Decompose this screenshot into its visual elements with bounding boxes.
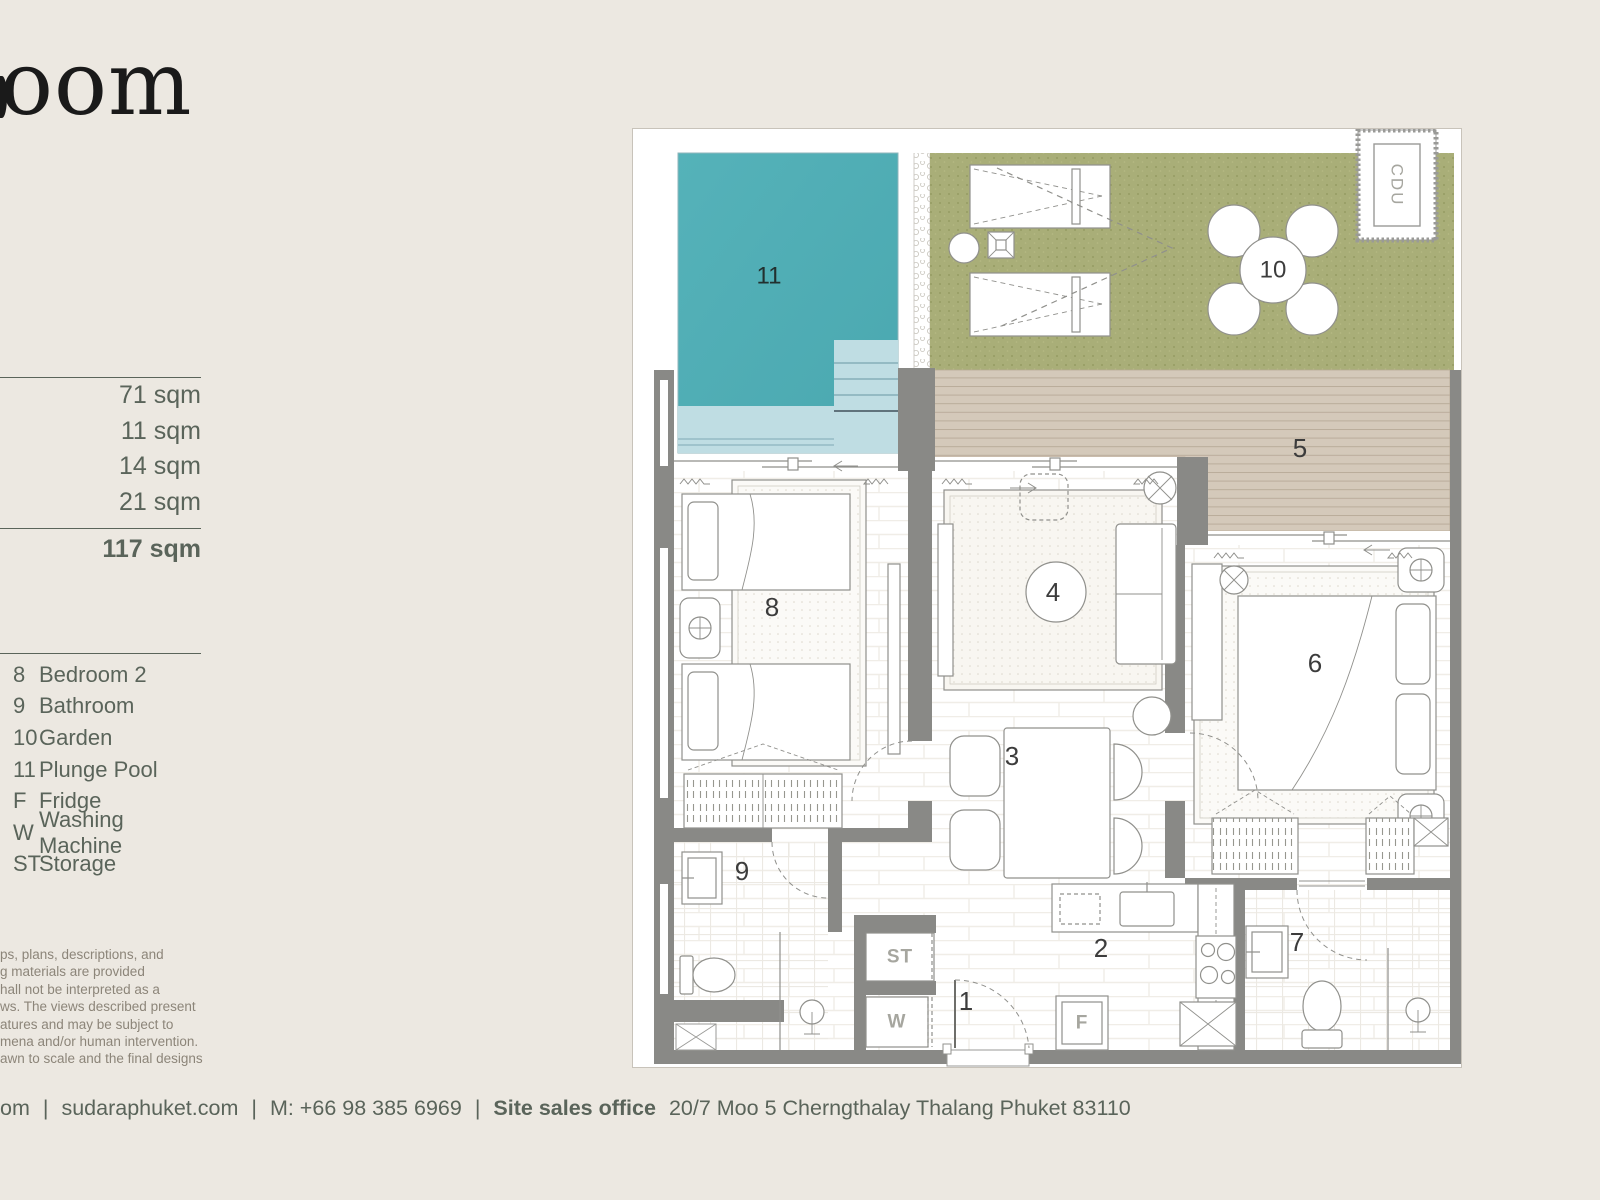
cooktop <box>1196 936 1236 998</box>
disclaimer-line: mena and/or human intervention. <box>0 1033 230 1050</box>
area-summary: 71 sqm 11 sqm 14 sqm 21 sqm 117 sqm <box>0 377 201 569</box>
legend-label: Bedroom 2 <box>39 662 201 688</box>
label-kitchen: 2 <box>1094 933 1108 963</box>
nightstand-lamp <box>680 598 720 658</box>
twin-bed <box>682 664 850 760</box>
footer-website: sudaraphuket.com <box>61 1096 238 1121</box>
legend-label: Garden <box>39 725 201 751</box>
plan-legend: 8Bedroom 2 9Bathroom 10Garden 11Plunge P… <box>0 653 201 880</box>
legend-item: 10Garden <box>0 722 201 754</box>
plant <box>1144 472 1176 504</box>
tv-console <box>938 524 953 676</box>
sun-lounger <box>970 165 1110 228</box>
pebble-strip <box>914 153 930 370</box>
label-bathroom1: 9 <box>735 856 749 886</box>
legend-label: Bathroom <box>39 693 201 719</box>
legend-item: 9Bathroom <box>0 691 201 723</box>
kitchen-island <box>1052 882 1198 932</box>
label-bedroom2: 8 <box>765 592 779 622</box>
label-bathroom2: 7 <box>1290 927 1304 957</box>
legend-key: W <box>13 820 39 846</box>
label-bedroom1: 6 <box>1308 648 1322 678</box>
chair <box>950 810 1000 870</box>
twin-bed <box>682 494 850 590</box>
legend-key: ST <box>13 851 39 877</box>
legend-key: 9 <box>13 693 39 719</box>
toilet <box>680 956 735 994</box>
legend-label: Plunge Pool <box>39 757 201 783</box>
area-value: 11 sqm <box>121 417 201 446</box>
disclaimer-text: ps, plans, descriptions, and g materials… <box>0 946 230 1068</box>
dining-table <box>1004 728 1110 878</box>
sink-vanity <box>1246 926 1288 978</box>
area-value: 21 sqm <box>119 488 201 517</box>
label-entrance: 1 <box>959 986 973 1016</box>
side-table <box>1133 697 1171 735</box>
nightstand-lamp <box>1398 548 1444 592</box>
label-living: 4 <box>1046 577 1060 607</box>
legend-key: 8 <box>13 662 39 688</box>
disclaimer-line: ws. The views described present <box>0 998 230 1015</box>
legend-key: F <box>13 788 39 814</box>
label-fridge: F <box>1076 1013 1089 1034</box>
desk <box>1192 564 1222 720</box>
legend-item: 11Plunge Pool <box>0 754 201 786</box>
area-total-value: 117 sqm <box>102 535 201 564</box>
label-cdu: CDU <box>1388 164 1407 207</box>
label-deck: 5 <box>1293 433 1307 463</box>
sliding-door-living <box>935 457 1177 471</box>
disclaimer-line: g materials are provided <box>0 963 230 980</box>
area-value: 14 sqm <box>119 452 201 481</box>
sink <box>1120 892 1174 926</box>
floor-plan: 11 10 5 8 4 3 6 9 2 7 1 ST W F CDU <box>632 128 1462 1068</box>
storage-panel <box>1414 818 1448 846</box>
sofa <box>1116 524 1176 664</box>
label-washing: W <box>888 1012 907 1033</box>
vent-box <box>1180 1002 1236 1046</box>
floor-plan-svg: 11 10 5 8 4 3 6 9 2 7 1 ST W F CDU <box>632 128 1462 1068</box>
footer-separator: | <box>43 1096 49 1121</box>
footer-contact-bar: om | sudaraphuket.com | M: +66 98 385 69… <box>0 1096 1131 1121</box>
footer-clipped-fragment: om <box>0 1096 30 1121</box>
label-plunge-pool: 11 <box>757 263 782 290</box>
legend-item: 8Bedroom 2 <box>0 659 201 691</box>
umbrella-base <box>988 232 1014 258</box>
chair <box>950 736 1000 796</box>
disclaimer-line: ps, plans, descriptions, and <box>0 946 230 963</box>
disclaimer-line: awn to scale and the final designs <box>0 1050 230 1067</box>
footer-office-label: Site sales office <box>493 1096 656 1121</box>
label-storage: ST <box>887 947 913 968</box>
sliding-door-bedroom2 <box>674 457 898 471</box>
divider <box>0 653 201 654</box>
label-dining: 3 <box>1005 741 1019 771</box>
footer-separator: | <box>475 1096 481 1121</box>
area-value: 71 sqm <box>119 381 201 410</box>
footer-mobile: M: +66 98 385 6969 <box>270 1096 462 1121</box>
garden-side-table <box>949 233 979 263</box>
disclaimer-line: hall not be interpreted as a <box>0 981 230 998</box>
toilet <box>1302 981 1342 1048</box>
disclaimer-line: atures and may be subject to <box>0 1016 230 1033</box>
legend-item: WWashing Machine <box>0 817 201 849</box>
brand-logo-fragment: oom <box>0 40 192 128</box>
plant <box>1220 566 1248 594</box>
legend-key: 11 <box>13 757 39 783</box>
plunge-pool <box>678 153 898 453</box>
double-bed <box>1238 596 1436 790</box>
footer-office-address: 20/7 Moo 5 Cherngthalay Thalang Phuket 8… <box>669 1096 1131 1121</box>
legend-item: STStorage <box>0 849 201 881</box>
sun-lounger <box>970 273 1110 336</box>
sink-vanity <box>682 852 722 904</box>
console <box>888 564 900 754</box>
sliding-door-bedroom1 <box>1208 531 1450 545</box>
label-garden: 10 <box>1260 257 1287 284</box>
exterior-vent-box <box>676 1024 716 1050</box>
legend-label: Storage <box>39 851 201 877</box>
legend-key: 10 <box>13 725 39 751</box>
footer-separator: | <box>251 1096 257 1121</box>
